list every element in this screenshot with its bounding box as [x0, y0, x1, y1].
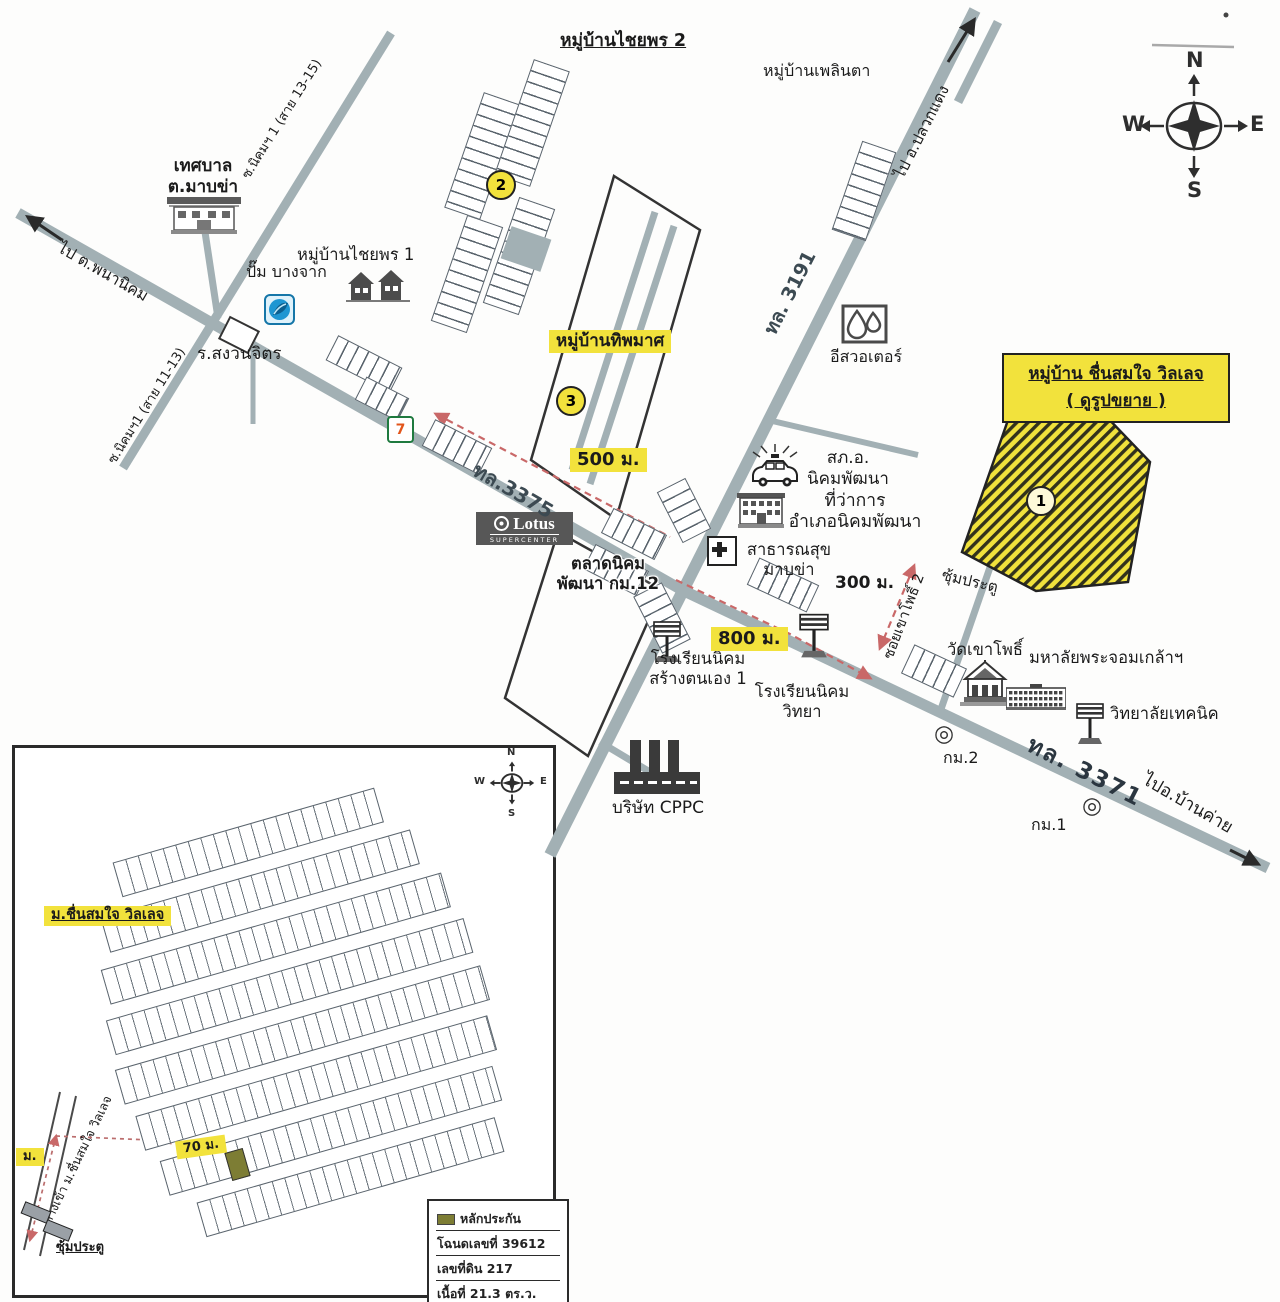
lotus-supercenter-sign: Lotus SUPERCENTER [476, 512, 573, 545]
university-building-icon [1006, 684, 1066, 711]
inset-compass-n-label: N [507, 747, 515, 758]
district-office-label: ที่ว่าการ อำเภอนิคมพัฒนา [780, 491, 930, 534]
technical-college-label: วิทยาลัยเทคนิค [1110, 704, 1219, 724]
collateral-swatch-icon [437, 1214, 455, 1225]
km2-marker-icon: ◎ [934, 720, 954, 748]
marker-3-label: 3 [566, 392, 576, 410]
municipality-label: เทศบาล ต.มาบข่า [157, 156, 249, 197]
village-callout-line1: หมู่บ้าน ชื่นสมใจ วิลเลจ [1008, 360, 1224, 387]
municipality-line1: เทศบาล [157, 156, 249, 177]
marker-circle-3: 3 [556, 386, 586, 416]
police-line2: นิคมพัฒนา [804, 469, 892, 490]
police-label: สภ.อ. นิคมพัฒนา [804, 448, 892, 489]
distance-800m-label: 800 ม. [711, 627, 788, 651]
legend-title-line: หลักประกัน [436, 1206, 560, 1231]
bangchak-label: ปั๊ม บางจาก [246, 262, 327, 282]
chaiyaporn2-title: หมู่บ้านไชยพร 2 [560, 31, 686, 52]
lotus-sub-label: SUPERCENTER [490, 534, 559, 544]
health-cross-icon [707, 536, 737, 566]
ploenta-label: หมู่บ้านเพลินตา [763, 61, 870, 81]
district-office-building-icon [737, 489, 785, 531]
wat-khaopho-label: วัดเขาโพธิ์ [947, 640, 1023, 660]
inset-compass-w-label: W [474, 776, 485, 787]
health-line2: มาบข่า [735, 560, 843, 580]
inset-legend: หลักประกัน โฉนดเลขที่ 39612 เลขที่ดิน 21… [427, 1199, 569, 1302]
school2-line2: วิทยา [748, 702, 856, 722]
km2-label: กม.2 [943, 748, 979, 768]
municipality-line2: ต.มาบข่า [157, 177, 249, 198]
school2-line1: โรงเรียนนิคม [748, 682, 856, 702]
market-line2: พัฒนา กม.12 [550, 574, 666, 594]
bangchak-logo-icon [264, 294, 295, 325]
inset-title: ม.ชื่นสมใจ วิลเลจ [44, 906, 171, 926]
factory-icon [610, 740, 704, 798]
marker-1-label: 1 [1036, 492, 1046, 510]
thipphamat-label: หมู่บ้านทิพมาศ [549, 330, 671, 353]
school-flag-icon [798, 612, 830, 660]
compass-n-label: N [1186, 48, 1204, 72]
legend-parcel-line: เลขที่ดิน 217 [436, 1256, 560, 1281]
inset-m-edge-label: ม. [16, 1148, 44, 1166]
sanguanchit-label: ร.สงวนจิตร [197, 344, 282, 365]
compass-icon [1134, 68, 1254, 184]
market-line1: ตลาดนิคม [550, 554, 666, 574]
inset-gate-label: ซุ้มประตู [56, 1240, 104, 1256]
km1-marker-icon: ◎ [1082, 792, 1102, 820]
inset-compass-s-label: S [508, 808, 515, 819]
compass-w-label: W [1122, 112, 1145, 136]
eastwater-drops-icon [841, 304, 888, 347]
school1-label: โรงเรียนนิคม สร้างตนเอง 1 [642, 649, 754, 689]
marker-2-label: 2 [496, 176, 506, 194]
village-callout-box: หมู่บ้าน ชื่นสมใจ วิลเลจ ( ดูรูปขยาย ) [1002, 353, 1230, 423]
marker-circle-1: 1 [1026, 486, 1056, 516]
market-label: ตลาดนิคม พัฒนา กม.12 [550, 554, 666, 594]
legend-title: หลักประกัน [460, 1211, 521, 1226]
cppc-label: บริษัท CPPC [612, 798, 704, 819]
houses-icon [346, 268, 410, 304]
seven-eleven-icon: 7 [387, 416, 414, 443]
district-line2: อำเภอนิคมพัฒนา [780, 512, 930, 533]
municipality-building-icon [167, 195, 241, 237]
school2-label: โรงเรียนนิคม วิทยา [748, 682, 856, 722]
distance-500m-label: 500 ม. [570, 448, 647, 472]
school1-line1: โรงเรียนนิคม [642, 649, 754, 669]
police-line1: สภ.อ. [804, 448, 892, 469]
inset-compass-e-label: E [540, 776, 547, 787]
inset-compass-icon [489, 760, 535, 806]
eastwater-label: อีสวอเตอร์ [830, 347, 902, 367]
distance-300m-label: 300 ม. [835, 573, 894, 594]
marker-circle-2: 2 [486, 170, 516, 200]
compass-e-label: E [1250, 112, 1264, 136]
district-line1: ที่ว่าการ [780, 491, 930, 512]
village-callout-line2: ( ดูรูปขยาย ) [1008, 387, 1224, 414]
seven-eleven-label: 7 [396, 422, 406, 438]
village-hatched-area [962, 412, 1150, 591]
legend-area-line: เนื้อที่ 21.3 ตร.ว. [436, 1281, 560, 1302]
compass-topline [1152, 45, 1234, 47]
compass-s-label: S [1187, 178, 1202, 202]
university-label: มหาลัยพระจอมเกล้าฯ [1029, 648, 1183, 668]
temple-icon [958, 660, 1012, 708]
legend-deed-line: โฉนดเลขที่ 39612 [436, 1231, 560, 1256]
health-office-label: สาธารณสุข มาบข่า [735, 540, 843, 580]
scan-dot [1224, 13, 1229, 18]
health-line1: สาธารณสุข [735, 540, 843, 560]
college-flag-icon [1075, 702, 1105, 746]
map-canvas: 7 Lotus SUPERCENTER [0, 0, 1280, 1302]
km1-label: กม.1 [1031, 815, 1067, 835]
lotus-logo-icon [494, 516, 509, 531]
police-car-icon [750, 442, 800, 488]
school1-line2: สร้างตนเอง 1 [642, 669, 754, 689]
